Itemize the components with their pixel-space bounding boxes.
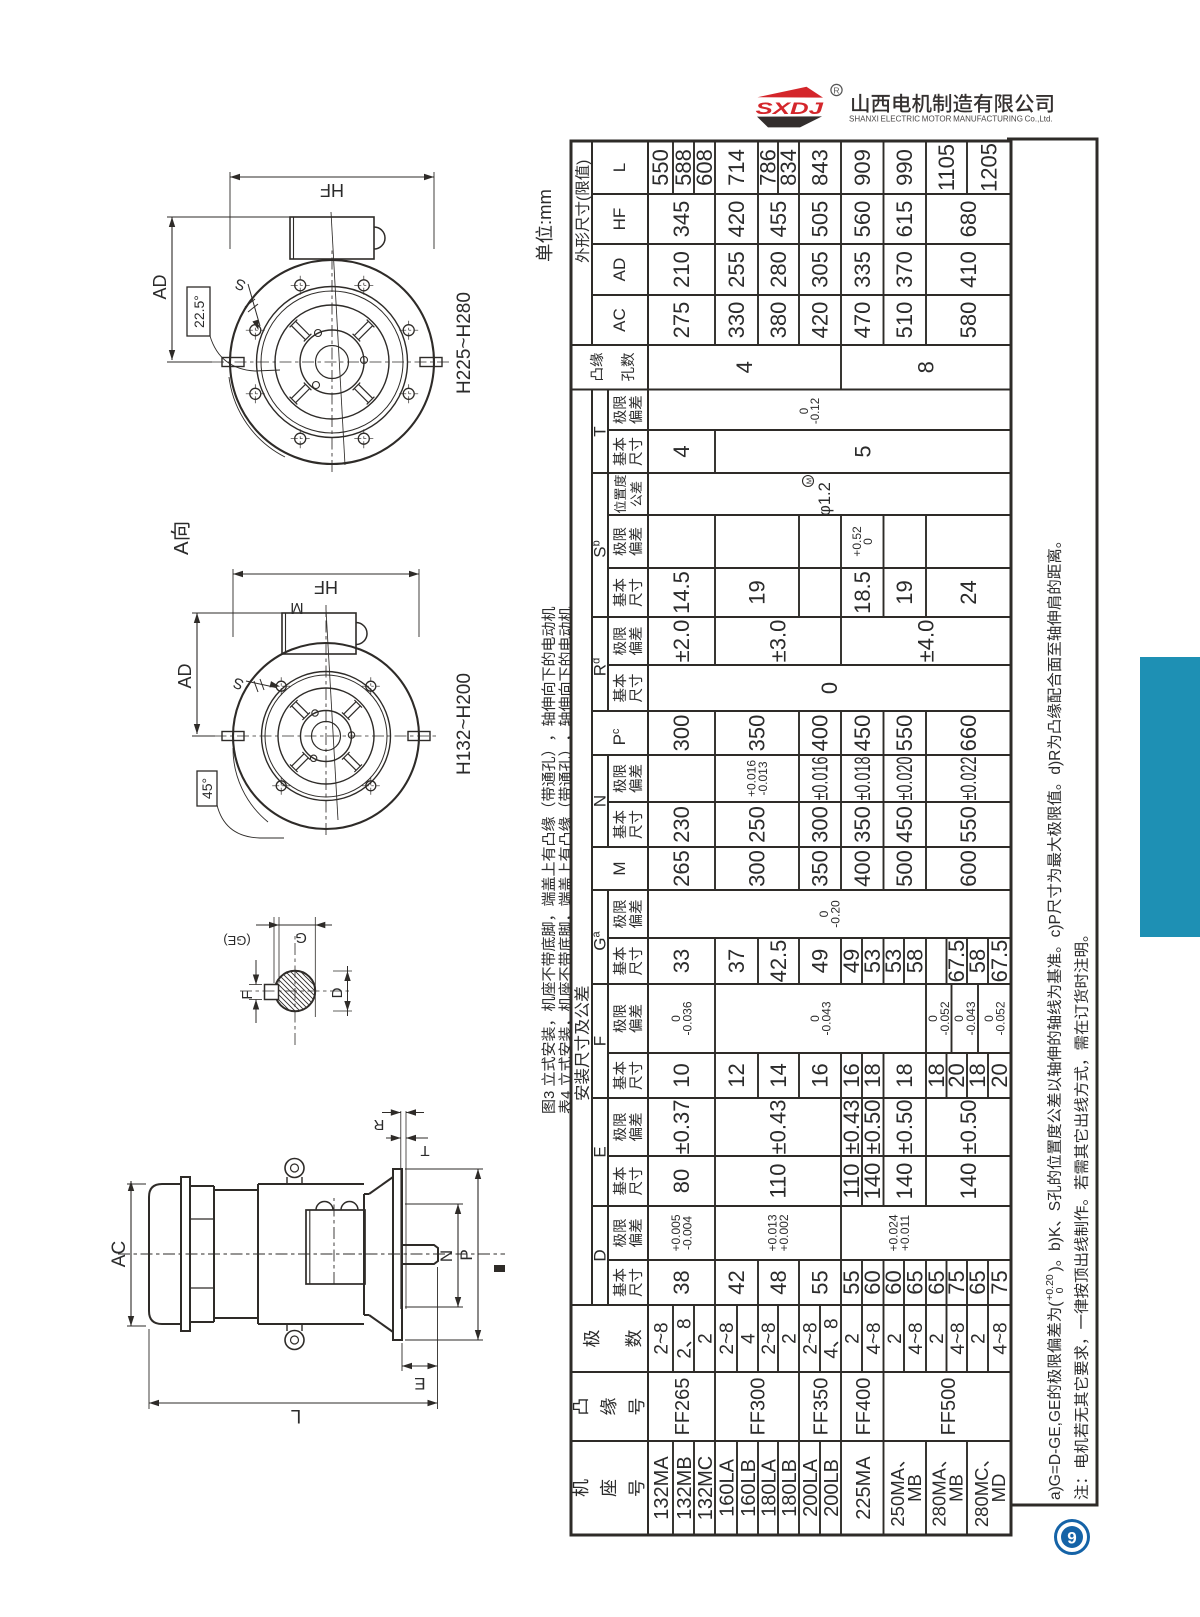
svg-text:9: 9 <box>1067 1529 1076 1548</box>
svg-text:SXDJ: SXDJ <box>756 100 825 118</box>
svg-text:SHANXI ELECTRIC MOTOR MANUFACT: SHANXI ELECTRIC MOTOR MANUFACTURING Co.,… <box>849 115 1053 124</box>
svg-text:R: R <box>833 86 839 96</box>
